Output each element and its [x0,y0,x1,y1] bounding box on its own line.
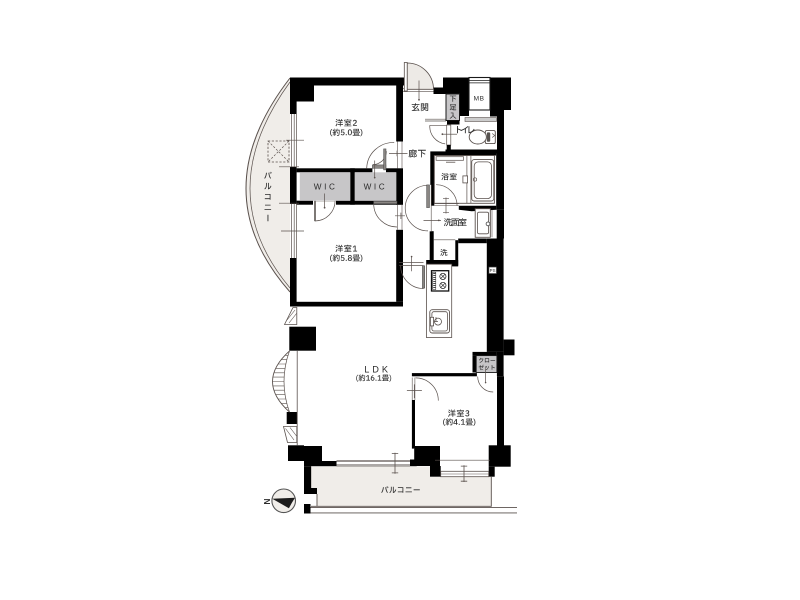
svg-text:LDK: LDK [364,364,391,374]
svg-text:WIC: WIC [364,183,388,192]
svg-text:MB: MB [474,95,485,102]
svg-text:N: N [262,498,272,504]
svg-text:WIC: WIC [314,183,338,192]
svg-text:PS: PS [490,268,496,273]
